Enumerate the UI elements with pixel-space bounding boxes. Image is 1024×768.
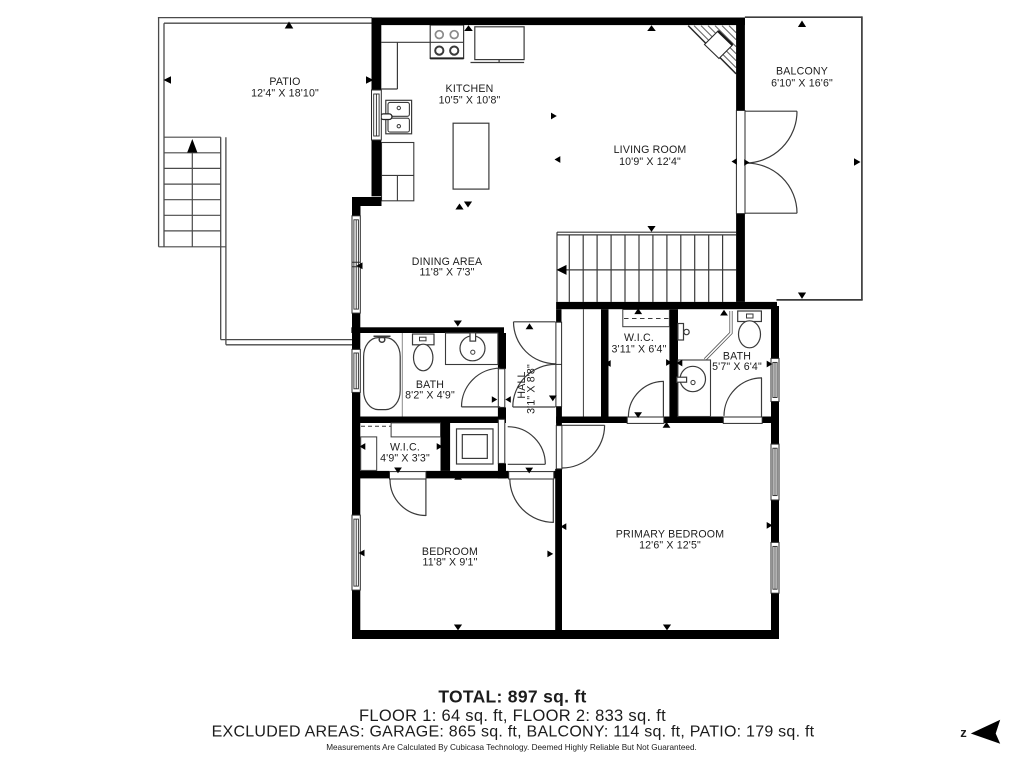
svg-text:12'6" X 12'5": 12'6" X 12'5" [639,540,701,552]
svg-text:FLOOR 1: 64 sq. ft, FLOOR 2: 8: FLOOR 1: 64 sq. ft, FLOOR 2: 833 sq. ft [359,707,666,725]
svg-text:10'5" X 10'8": 10'5" X 10'8" [439,94,501,106]
svg-text:PATIO: PATIO [269,76,300,88]
svg-text:8'2" X 4'9": 8'2" X 4'9" [405,389,455,401]
svg-text:11'8" X 9'1": 11'8" X 9'1" [423,557,478,569]
svg-text:W.I.C.: W.I.C. [624,332,654,344]
svg-text:10'9" X 12'4": 10'9" X 12'4" [619,156,681,168]
svg-text:Measurements Are Calculated By: Measurements Are Calculated By Cubicasa … [326,743,697,752]
svg-text:5'7" X 6'4": 5'7" X 6'4" [712,361,762,373]
svg-text:LIVING ROOM: LIVING ROOM [614,144,687,156]
svg-text:12'4" X 18'10": 12'4" X 18'10" [251,88,319,100]
svg-text:3'11" X 6'4": 3'11" X 6'4" [612,344,667,356]
svg-text:TOTAL: 897 sq. ft: TOTAL: 897 sq. ft [438,687,586,707]
svg-text:BALCONY: BALCONY [776,66,828,78]
svg-text:EXCLUDED AREAS: GARAGE: 865 sq: EXCLUDED AREAS: GARAGE: 865 sq. ft, BALC… [212,724,815,741]
svg-text:3'1" X 8'8": 3'1" X 8'8" [526,364,538,414]
svg-text:KITCHEN: KITCHEN [446,83,494,95]
svg-text:11'8" X 7'3": 11'8" X 7'3" [420,267,475,279]
svg-text:z: z [960,725,967,740]
svg-text:6'10" X 16'6": 6'10" X 16'6" [771,78,833,90]
svg-text:4'9" X 3'3": 4'9" X 3'3" [380,453,430,465]
